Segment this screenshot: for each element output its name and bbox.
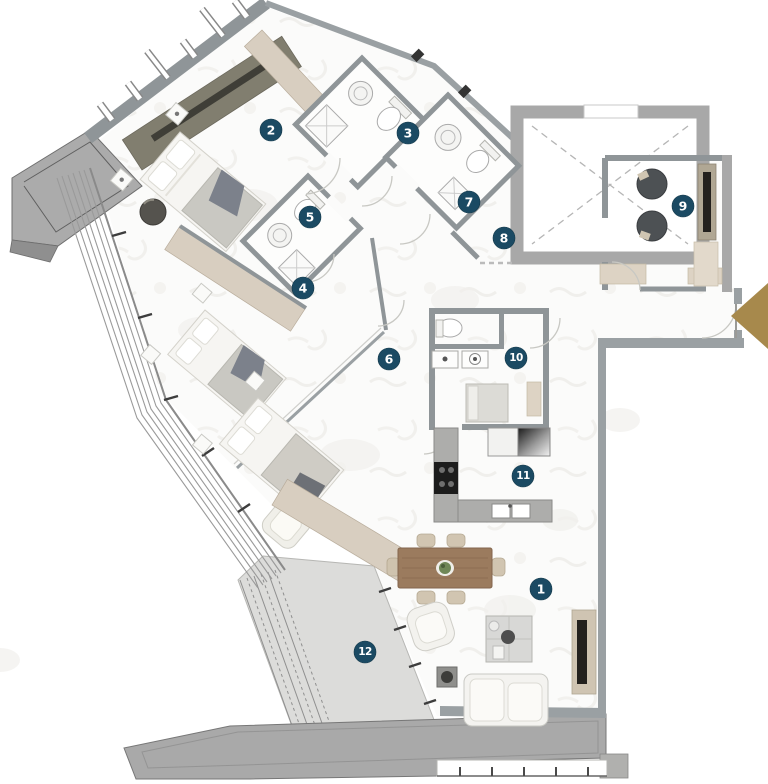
study-mat [694, 242, 718, 286]
kitchen-cabinet [488, 428, 518, 456]
elevator-door [584, 105, 638, 118]
room-marker-8: 8 [493, 227, 515, 249]
sink [512, 504, 530, 518]
plant-icon [439, 562, 451, 574]
dining-chair [447, 534, 465, 547]
dining-chair [492, 558, 505, 576]
room-marker-9: 9 [672, 195, 694, 217]
room-marker-11: 11 [512, 465, 534, 487]
room-marker-label: 1 [537, 582, 546, 597]
utility-mat [527, 382, 541, 416]
sink [492, 504, 510, 518]
lower-window-band [437, 760, 607, 776]
room-marker-3: 3 [397, 122, 419, 144]
room-marker-6: 6 [378, 348, 400, 370]
dining-chair [447, 591, 465, 604]
room-marker-label: 9 [679, 199, 688, 214]
room-marker-label: 10 [509, 352, 523, 364]
tv-icon [577, 620, 587, 684]
dining-chair [417, 534, 435, 547]
stove [434, 462, 458, 494]
sofa [464, 674, 548, 726]
dining-chair [417, 591, 435, 604]
room-marker-7: 7 [458, 191, 480, 213]
room-marker-5: 5 [299, 206, 321, 228]
room-marker-label: 6 [385, 352, 394, 367]
room-marker-label: 12 [358, 646, 372, 658]
floor-plan-page: 1 2 3 4 5 6 7 8 [0, 0, 768, 784]
room-marker-label: 3 [404, 126, 413, 141]
decor-bowl [501, 630, 515, 644]
room-marker-12: 12 [354, 641, 376, 663]
room-marker-10: 10 [505, 347, 527, 369]
room-marker-label: 11 [516, 470, 530, 482]
room-marker-2: 2 [260, 119, 282, 141]
pillow [468, 386, 478, 420]
study-cabinet-dark [703, 172, 711, 232]
room-marker-label: 8 [500, 231, 509, 246]
fridge [518, 428, 550, 456]
room-marker-label: 4 [299, 281, 308, 296]
room-marker-label: 5 [306, 210, 315, 225]
room-marker-4: 4 [292, 277, 314, 299]
elevator-shaft [517, 105, 703, 258]
room-marker-label: 2 [267, 123, 276, 138]
room-marker-1: 1 [530, 578, 552, 600]
room-marker-label: 7 [465, 195, 474, 210]
floor-plan-svg: 1 2 3 4 5 6 7 8 [0, 0, 768, 784]
